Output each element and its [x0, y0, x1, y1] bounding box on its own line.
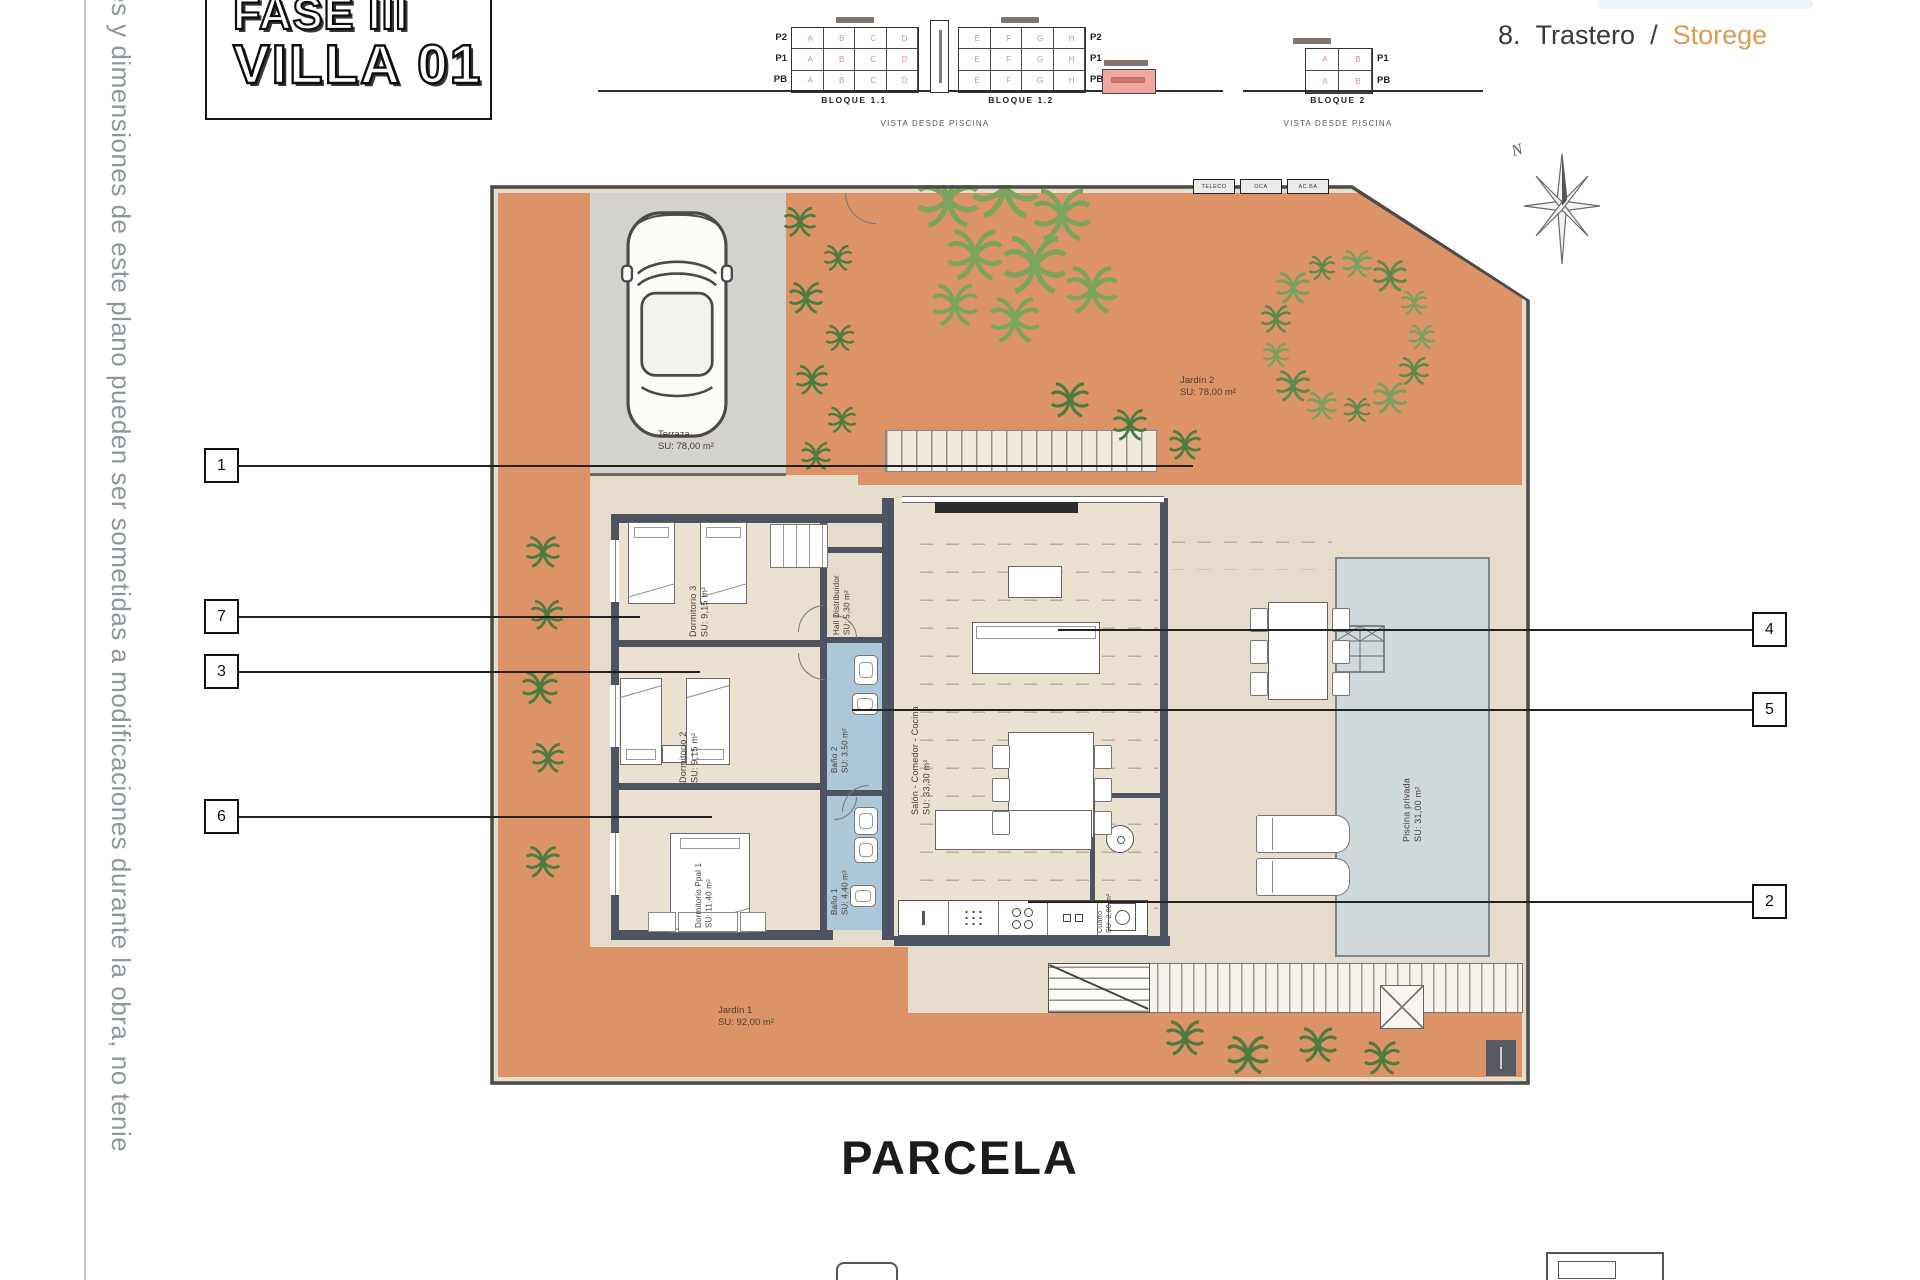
toilet [854, 655, 878, 685]
illegible-unit-label [1111, 77, 1145, 83]
grove-tree-icon [1275, 368, 1311, 404]
elevation-unit-cell: C [855, 28, 887, 49]
swimming-pool: Piscina privadaSU: 31,00 m² [1335, 557, 1490, 957]
window [610, 833, 619, 895]
callout-line-2 [1028, 901, 1753, 903]
illegible-dimension-label [1293, 38, 1331, 44]
illegible-dimension-label [836, 17, 874, 23]
elevation-unit-cell: H [1054, 28, 1086, 49]
wall-salon-right [1160, 498, 1168, 938]
fern-icon [931, 281, 979, 329]
elevation-unit-cell: F [991, 49, 1023, 70]
scanner-smudge [1598, 0, 1813, 9]
elevation-unit-cell: A [1306, 49, 1339, 71]
terrace-beam-dashes [1172, 515, 1332, 570]
palm-tree-icon [525, 534, 561, 570]
burner [1012, 908, 1021, 917]
grove-tree-icon [1400, 289, 1428, 317]
unit-glyph [963, 909, 983, 927]
elevation-unit-cell: A [792, 28, 824, 49]
bano1-label: Baño 1SU: 4,40 m² [830, 810, 851, 915]
salon-label: Salón - Comedor - CocinaSU: 33,30 m² [910, 640, 933, 815]
unit-glyph [922, 911, 925, 925]
legend-separator: / [1650, 20, 1658, 51]
elevation-grid-bloque-1-1: ABCDABCDABCD [791, 27, 919, 93]
elevation-unit-cell: D [887, 49, 919, 70]
elevation-unit-cell: G [1022, 71, 1054, 92]
window [610, 540, 619, 602]
elevation-grid-bloque-2: ABAB [1305, 48, 1373, 94]
elevation-unit-cell: D [887, 71, 919, 92]
callout-line-7 [238, 616, 640, 618]
terrace-stoop [648, 912, 676, 932]
next-sheet-fragment [836, 1262, 898, 1280]
next-sheet-fragment-inner [1558, 1261, 1616, 1279]
palm-tree-icon [1050, 380, 1090, 420]
sun-lounger [1256, 858, 1350, 896]
legend-number: 8. [1498, 20, 1521, 51]
single-bed [628, 522, 675, 604]
elevation-unit-cell: F [991, 28, 1023, 49]
legend-label-en: Storege [1673, 20, 1768, 51]
coffee-table [1008, 566, 1062, 598]
bano2-label: Baño 2SU: 3,50 m² [830, 663, 851, 773]
vista-caption-left: VISTA DESDE PISCINA [810, 119, 1060, 128]
wall-bath-right [882, 498, 894, 940]
elevation-groundline-right [1243, 90, 1483, 92]
grove-tree-icon [1408, 323, 1436, 351]
elevation-unit-cell: H [1054, 71, 1086, 92]
elevation-unit-cell: B [824, 71, 856, 92]
north-label: N [1509, 141, 1525, 161]
wall-dorm3-dorm2 [618, 640, 827, 647]
elevation-unit-cell: H [1054, 49, 1086, 70]
callout-3: 3 [204, 654, 239, 689]
vista-caption-right: VISTA DESDE PISCINA [1213, 119, 1463, 128]
palm-tree-icon [1363, 1039, 1401, 1077]
fern-icon [970, 153, 1040, 223]
site-plan: Piscina privadaSU: 31,00 m² [490, 185, 1530, 1085]
bloque-1-1-caption: BLOQUE 1.1 [766, 95, 942, 105]
palm-tree-icon [800, 440, 832, 472]
grove-tree-icon [1275, 270, 1311, 306]
palm-tree-icon [1298, 1025, 1338, 1065]
cooktop-icon [998, 901, 1048, 935]
palm-tree-icon [783, 205, 817, 239]
kitchen-unit [899, 901, 948, 935]
floor-label: PB [765, 74, 787, 85]
burner [1024, 908, 1033, 917]
jardin1-label: Jardín 1SU: 92,00 m² [718, 1005, 774, 1030]
callout-5: 5 [1752, 692, 1787, 727]
disclaimer-side-note: es y dimensiones de este plano pueden se… [92, 0, 136, 1280]
utility-meter: OCA [1240, 179, 1282, 194]
sq [1063, 914, 1071, 922]
storage-marker [1486, 1040, 1516, 1076]
grove-tree-icon [1343, 396, 1371, 424]
parcela-caption: PARCELA [760, 1130, 1160, 1185]
burner [1012, 920, 1021, 929]
cuarto-label: CuartoSU: 2,00 m² [1096, 853, 1114, 933]
utility-meter: TELECO [1193, 179, 1235, 194]
floor-label: PB [1377, 75, 1399, 86]
palm-tree-icon [1226, 1033, 1270, 1077]
single-bed [620, 678, 662, 765]
palm-tree-icon [795, 363, 829, 397]
next-sheet-fragment [1546, 1252, 1664, 1280]
bloque-2-caption: BLOQUE 2 [1250, 95, 1426, 105]
floor-label: P2 [1090, 32, 1112, 43]
palm-tree-icon [827, 405, 857, 435]
garden-jardin1 [498, 947, 908, 1077]
kitchen-island [935, 810, 1092, 850]
elevation-unit-cell: F [991, 71, 1023, 92]
floor-label: P1 [1377, 53, 1399, 64]
dormitorio2-label: Dormitorio 2SU: 9,15 m² [678, 683, 701, 783]
kitchen-unit [948, 901, 998, 935]
dining-table-outdoor [1268, 602, 1328, 700]
terrace-stoop [740, 912, 766, 932]
callout-7: 7 [204, 599, 239, 634]
wardrobe [770, 524, 828, 568]
chair [1332, 640, 1350, 664]
wall-bedrooms-right [820, 514, 827, 940]
floor-label: P2 [765, 32, 787, 43]
callout-6: 6 [204, 799, 239, 834]
palm-tree-icon [788, 280, 824, 316]
elevation-grid-bloque-1-2: EFGHEFGHEFGH [958, 27, 1086, 93]
chair [1332, 672, 1350, 696]
driveway-edge [590, 473, 786, 476]
north-compass-icon [1516, 148, 1608, 270]
elevation-unit-cell: E [959, 49, 991, 70]
callout-line-5 [852, 709, 1753, 711]
callout-line-4 [1058, 629, 1753, 631]
floor-label: P1 [765, 53, 787, 64]
fern-icon [989, 294, 1041, 346]
palm-tree-icon [1165, 1018, 1205, 1058]
callout-1: 1 [204, 448, 239, 483]
dormitorio-ppal-label: Dormitorio Ppal 1SU: 11,40 m² [694, 843, 715, 928]
fern-icon [946, 226, 1004, 284]
elevation-unit-cell: E [959, 71, 991, 92]
legend-label-es: Trastero [1536, 20, 1636, 51]
burner [1024, 920, 1033, 929]
toilet [854, 807, 878, 835]
terraza-label: TerrazaSU: 78,00 m² [658, 429, 714, 454]
callout-line-3 [238, 671, 700, 673]
elevation-unit-cell: G [1022, 49, 1054, 70]
chair [992, 745, 1010, 769]
plan-sheet: es y dimensiones de este plano pueden se… [0, 0, 1920, 1280]
wall-dorm2-dormppal [618, 783, 827, 790]
chair [992, 778, 1010, 802]
sheet-margin-rule [84, 0, 86, 1280]
legend-item-8: 8. Trastero / Storege [1498, 20, 1767, 51]
elevation-unit-cell: A [792, 49, 824, 70]
toilet [850, 885, 876, 907]
chair [1094, 745, 1112, 769]
sun-lounger [1256, 815, 1350, 853]
hall-label: Hall DistribuidorSU: 5,30 m² [832, 557, 853, 635]
washbasin [852, 693, 878, 715]
chair [1250, 672, 1268, 696]
title-block: FASE III VILLA 01 [205, 0, 492, 120]
window [610, 685, 619, 747]
dormitorio3-label: Dormitorio 3SU: 9,15 m² [688, 537, 711, 637]
garden-strip-left [498, 193, 590, 1077]
exterior-stairs [1048, 963, 1150, 1013]
palm-tree-icon [530, 598, 564, 632]
palm-tree-icon [521, 669, 559, 707]
washbasin [854, 837, 878, 863]
kitchen-unit [1047, 901, 1097, 935]
palm-tree-icon [1168, 428, 1202, 462]
elevation-unit-cell: C [855, 71, 887, 92]
palm-tree-icon [1112, 407, 1148, 443]
elevation-unit-cell: G [1022, 28, 1054, 49]
tv-sideboard [935, 502, 1078, 513]
sq [1075, 914, 1083, 922]
fern-icon [1002, 232, 1068, 298]
jardin2-label: Jardín 2SU: 78,00 m² [1180, 375, 1236, 400]
callout-line-1 [238, 465, 1193, 467]
wall-hall-top [827, 547, 889, 553]
phase-title: FASE III [233, 0, 490, 37]
palm-tree-icon [825, 323, 855, 353]
elevation-unit-cell: E [959, 28, 991, 49]
chair [1250, 640, 1268, 664]
grove-tree-icon [1262, 341, 1290, 369]
garden-bottom-right [908, 1013, 1522, 1077]
chair [1094, 811, 1112, 835]
grove-tree-icon [1372, 380, 1408, 416]
grove-tree-icon [1260, 303, 1292, 335]
unit-glyph [1010, 905, 1036, 931]
pool-label: Piscina privadaSU: 31,00 m² [1401, 672, 1424, 842]
palm-tree-icon [823, 243, 853, 273]
bloque-1-2-caption: BLOQUE 1.2 [933, 95, 1109, 105]
highlighted-trastero-unit [1102, 69, 1156, 94]
callout-4: 4 [1752, 612, 1787, 647]
elevation-unit-cell: C [855, 49, 887, 70]
elevation-unit-cell: B [824, 49, 856, 70]
elevation-unit-cell: D [887, 28, 919, 49]
wall-salon-bottom [894, 936, 1170, 946]
illegible-dimension-label [1104, 60, 1148, 66]
skylight-marker [1380, 985, 1424, 1029]
utility-meter: AC.BA [1287, 179, 1329, 194]
grove-tree-icon [1341, 248, 1373, 280]
elevation-unit-cell: B [824, 28, 856, 49]
grove-tree-icon [1308, 254, 1336, 282]
elevation-unit-cell: A [792, 71, 824, 92]
palm-tree-icon [525, 844, 561, 880]
elevation-unit-cell: B [1339, 49, 1372, 71]
callout-line-6 [238, 816, 712, 818]
palm-tree-icon [531, 741, 565, 775]
fern-icon [1065, 263, 1119, 317]
unit-glyph [1063, 914, 1083, 922]
villa-title: VILLA 01 [233, 37, 490, 92]
elevation-stair-core [930, 20, 949, 93]
chair [1094, 778, 1112, 802]
chair [992, 811, 1010, 835]
car-icon [618, 207, 736, 442]
callout-2: 2 [1752, 884, 1787, 919]
illegible-dimension-label [1001, 17, 1039, 23]
